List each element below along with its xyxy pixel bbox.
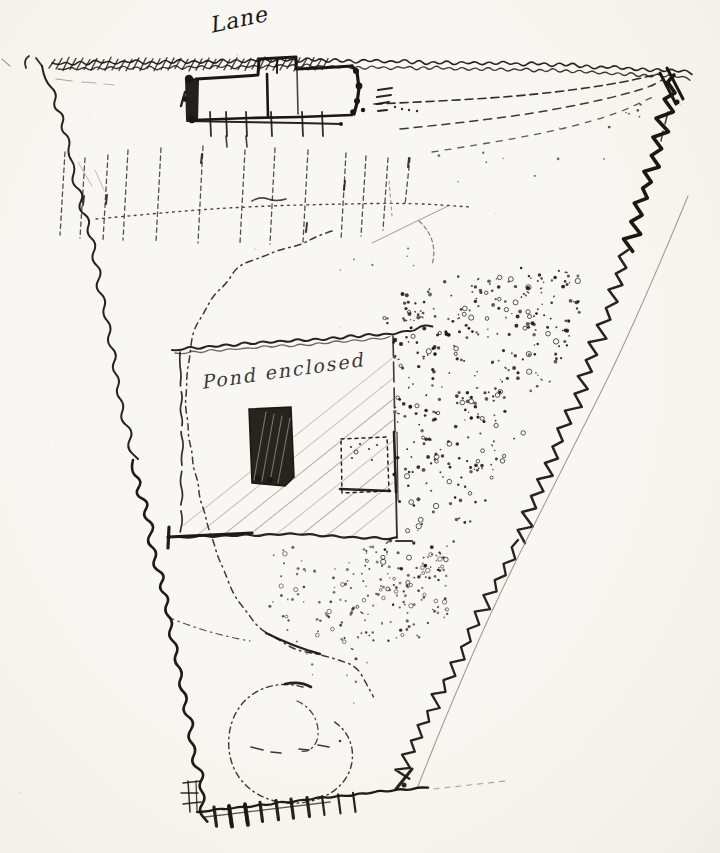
enclosure-note-text: Pond enclosed xyxy=(199,348,365,393)
planting-rows xyxy=(60,146,470,244)
dotted-outline-block xyxy=(340,432,398,500)
dark-hatched-block xyxy=(249,407,294,486)
stippled-ground xyxy=(268,247,580,703)
plot-plan-sketch: Lane Pond enclosed xyxy=(0,0,720,853)
left-boundary-wavy-line xyxy=(36,58,207,822)
lane-label: Lane xyxy=(207,1,271,38)
drive-dashed-lines xyxy=(374,74,662,182)
lane-boundary-hatching xyxy=(2,56,692,141)
spiral-walk xyxy=(229,683,353,803)
stray-marks xyxy=(19,54,682,844)
enclosure-note: Pond enclosed xyxy=(199,348,365,393)
sketch-page: Lane Pond enclosed xyxy=(0,0,720,853)
bottom-boundary-gate xyxy=(181,781,505,827)
lane-label-text: Lane xyxy=(207,1,271,38)
right-boundary-zigzag xyxy=(395,75,688,789)
